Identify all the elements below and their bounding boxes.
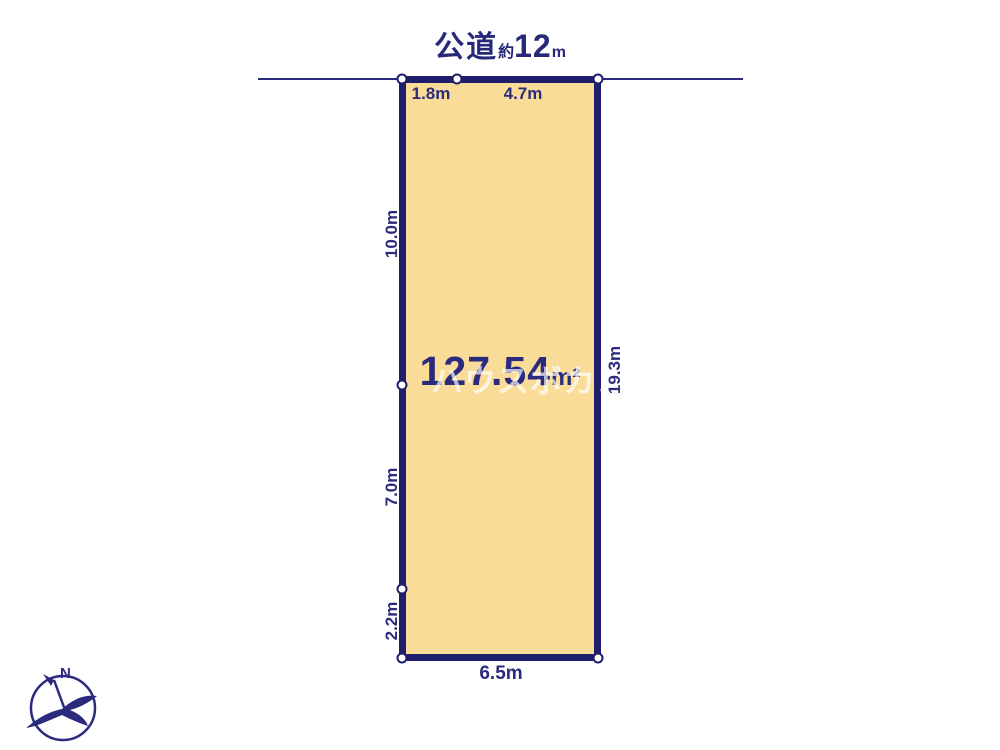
- dimension-label-left-upper: 10.0m: [382, 210, 402, 258]
- dimension-label-left-middle: 7.0m: [382, 468, 402, 507]
- compass-north-icon: N: [18, 662, 104, 748]
- vertex-marker-left-upper: [397, 380, 408, 391]
- road-approx-label: 約: [498, 44, 514, 61]
- road-width-value: 12: [514, 28, 552, 64]
- compass-north-letter: N: [60, 665, 71, 682]
- vertex-marker-top-left: [397, 74, 408, 85]
- dimension-label-bottom: 6.5m: [479, 663, 522, 685]
- road-width-unit: m: [552, 44, 566, 61]
- road-title: 公道約12m: [330, 22, 670, 66]
- vertex-marker-top-middle: [452, 74, 463, 85]
- vertex-marker-bottom-left: [397, 653, 408, 664]
- vertex-marker-top-right: [593, 74, 604, 85]
- watermark-text: ハウスボカン: [431, 356, 629, 402]
- dimension-label-top-left: 1.8m: [412, 84, 451, 104]
- dimension-label-top-right: 4.7m: [504, 84, 543, 104]
- vertex-marker-bottom-right: [593, 653, 604, 664]
- dimension-label-right-side: 19.3m: [605, 346, 625, 394]
- road-label: 公道: [434, 31, 498, 64]
- vertex-marker-left-lower: [397, 584, 408, 595]
- land-plot-diagram: 公道約12m 1.8m 4.7m 10.0m 7.0m 2.2m 19.3m 6…: [0, 0, 1000, 750]
- dimension-label-left-lower: 2.2m: [382, 602, 402, 641]
